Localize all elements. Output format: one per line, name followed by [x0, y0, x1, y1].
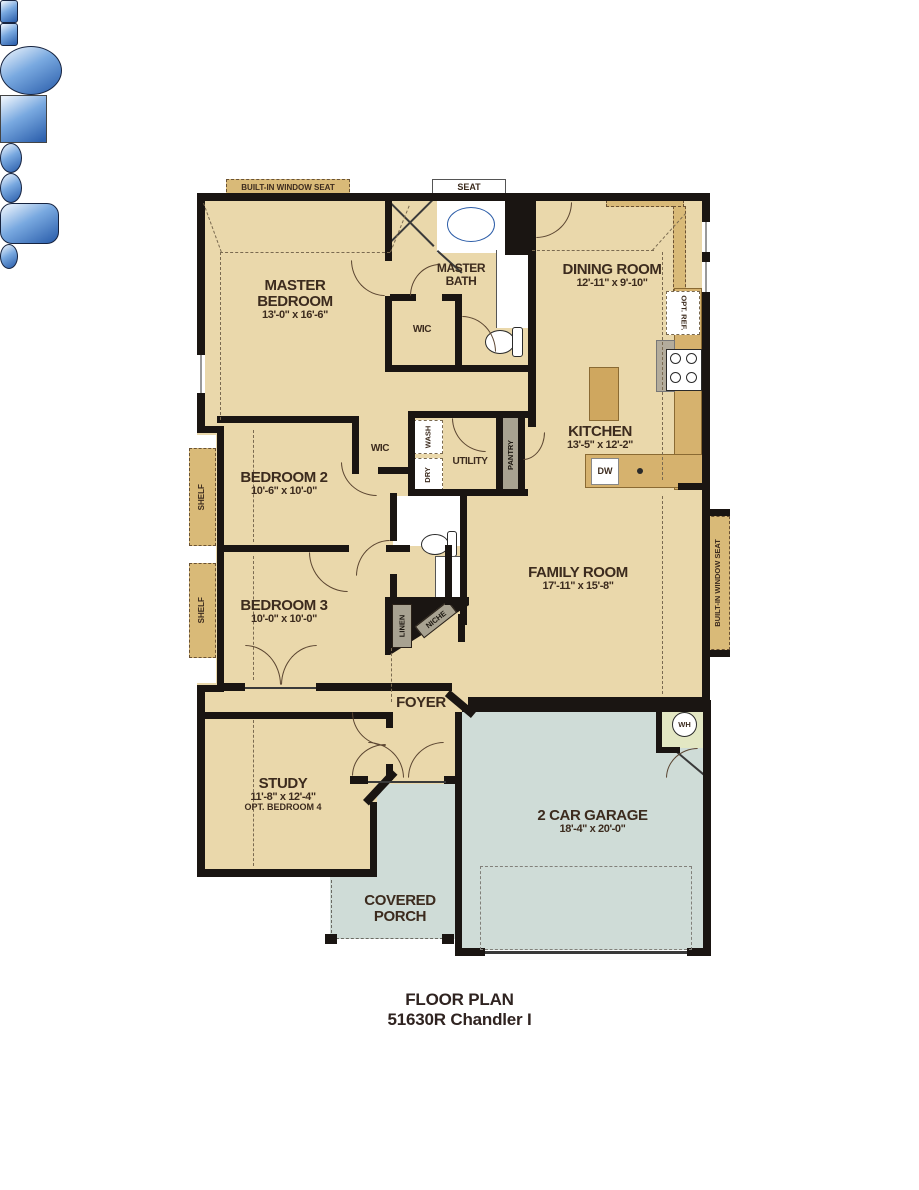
built-in-window-seat-top-label: BUILT-IN WINDOW SEAT — [241, 184, 334, 192]
room-dims: 18'-4" x 20'-0" — [520, 824, 665, 836]
linen-closet: LINEN — [392, 604, 412, 648]
dry-label: DRY — [424, 467, 432, 483]
shelf-label: SHELF — [198, 484, 206, 510]
tray-ceiling-dash — [220, 252, 390, 253]
washer: WASH — [413, 420, 443, 454]
bedroom2-label: BEDROOM 2 10'-6" x 10'-0" — [226, 470, 342, 497]
closet-opening-line — [245, 687, 316, 689]
wall — [703, 700, 711, 956]
wall — [370, 802, 377, 874]
pantry-shelving: PANTRY — [503, 413, 518, 496]
master-bath-label: MASTER BATH — [420, 262, 502, 287]
bathtub-inner-ring — [447, 207, 495, 242]
room-name: BEDROOM 3 — [226, 598, 342, 614]
faucet-icon — [637, 468, 643, 474]
family-room-label: FAMILY ROOM 17'-11" x 15'-8" — [518, 565, 638, 592]
wall — [460, 493, 467, 625]
burner-icon — [686, 372, 697, 383]
wall — [455, 712, 462, 956]
built-in-window-seat-right-label: BUILT-IN WINDOW SEAT — [714, 539, 722, 627]
wall — [217, 416, 357, 423]
dryer: DRY — [413, 458, 443, 491]
room-name: UTILITY — [440, 457, 500, 468]
kitchen-sink-icon — [0, 0, 18, 23]
master-bedroom-label: MASTER BEDROOM 13'-0" x 16'-6" — [230, 278, 360, 321]
room-name: BEDROOM 2 — [226, 470, 342, 486]
room-name: COVERED PORCH — [352, 893, 448, 925]
pantry-label: PANTRY — [507, 440, 515, 470]
wall — [385, 296, 392, 372]
wash-label: WASH — [424, 426, 432, 449]
bathtub2-icon — [0, 203, 59, 244]
window-glass-line — [705, 262, 707, 292]
dw-label: DW — [598, 467, 613, 476]
room-name: STUDY — [223, 776, 343, 792]
covered-porch-label: COVERED PORCH — [352, 893, 448, 925]
dishwasher: DW — [591, 458, 619, 485]
wall — [197, 193, 512, 201]
burner-icon — [670, 372, 681, 383]
cased-opening-dash — [391, 648, 392, 702]
burner-icon — [670, 353, 681, 364]
toilet-tank-icon — [512, 327, 523, 357]
entry-threshold-line — [368, 781, 446, 783]
room-name: WIC — [400, 325, 444, 336]
room-dims: 10'-6" x 10'-0" — [226, 486, 342, 498]
room-name: FAMILY ROOM — [518, 565, 638, 581]
wall — [468, 697, 710, 705]
bedroom3-shelf: SHELF — [189, 563, 216, 658]
bedroom3-label: BEDROOM 3 10'-0" x 10'-0" — [226, 598, 342, 625]
dining-room-label: DINING ROOM 12'-11" x 9'-10" — [560, 262, 664, 289]
dining-ceiling-dash — [532, 250, 654, 251]
porch-edge-dash — [331, 938, 443, 939]
room-name: KITCHEN — [540, 424, 660, 440]
wall — [462, 705, 710, 712]
window-glass-line — [200, 355, 202, 393]
shower-icon — [0, 95, 47, 143]
wall — [390, 574, 397, 602]
room-dims: 13'-0" x 16'-6" — [230, 310, 360, 322]
plan-subtitle: 51630R Chandler I — [0, 1010, 919, 1030]
wall — [217, 545, 349, 552]
wall — [408, 489, 528, 496]
seat-label: SEAT — [457, 183, 480, 192]
optional-refrigerator: OPT. REF. — [666, 291, 700, 335]
floor-plan: BUILT-IN WINDOW SEAT SEAT SHELF SHELF BU… — [0, 0, 919, 1190]
porch-post — [325, 934, 337, 944]
wall — [408, 411, 415, 494]
wall — [316, 683, 452, 691]
sink-icon — [0, 143, 22, 173]
wall — [197, 193, 205, 433]
plan-title: FLOOR PLAN — [0, 990, 919, 1010]
room-dims: 13'-5" x 12'-2" — [540, 440, 660, 452]
foyer-label: FOYER — [388, 695, 454, 711]
utility-label: UTILITY — [440, 457, 500, 468]
shelf-label: SHELF — [198, 597, 206, 623]
room-dims: 17'-11" x 15'-8" — [518, 581, 638, 593]
wall — [656, 747, 680, 753]
wall — [197, 869, 377, 877]
linen-label: LINEN — [398, 615, 406, 638]
master-wic-label: WIC — [400, 325, 444, 336]
wall — [217, 683, 245, 691]
sink-icon — [0, 244, 18, 269]
soffit-dash — [662, 496, 663, 694]
wall — [408, 411, 530, 418]
room-name: MASTER BATH — [420, 262, 502, 287]
wall — [678, 483, 704, 490]
room-name: 2 CAR GARAGE — [520, 808, 665, 824]
wh-label: WH — [678, 721, 691, 729]
study-label: STUDY 11'-8" x 12'-4" OPT. BEDROOM 4 — [223, 776, 343, 813]
wic2-label: WIC — [358, 444, 402, 455]
room-dims: 12'-11" x 9'-10" — [560, 278, 664, 290]
wall-chase — [505, 193, 536, 255]
porch-upper-area — [377, 784, 455, 876]
wall — [390, 493, 397, 541]
kitchen-island — [589, 367, 619, 421]
opt-ref-label: OPT. REF. — [679, 295, 687, 330]
kitchen-label: KITCHEN 13'-5" x 12'-2" — [540, 424, 660, 451]
tray-ceiling-dash — [220, 252, 221, 420]
room-name: WIC — [358, 444, 402, 455]
wall — [656, 705, 662, 753]
room-name: MASTER BEDROOM — [230, 278, 360, 310]
room-name: DINING ROOM — [560, 262, 664, 278]
wall — [528, 255, 536, 427]
bathtub-icon — [0, 46, 62, 95]
room-dims: 10'-0" x 10'-0" — [226, 614, 342, 626]
porch-post — [442, 934, 454, 944]
porch-edge-dash — [331, 880, 332, 938]
wall — [385, 365, 536, 372]
water-heater-icon: WH — [672, 712, 697, 737]
garage-door-dash-area — [480, 866, 692, 950]
wall — [217, 426, 224, 692]
garage-label: 2 CAR GARAGE 18'-4" x 20'-0" — [520, 808, 665, 835]
room-name: FOYER — [388, 695, 454, 711]
wall — [445, 545, 452, 605]
window-glass-line — [705, 222, 707, 252]
wall — [378, 467, 412, 474]
wall — [496, 411, 503, 496]
wall — [530, 193, 710, 201]
kitchen-sink-icon — [0, 23, 18, 46]
bedroom2-shelf: SHELF — [189, 448, 216, 546]
sink-icon — [0, 173, 22, 203]
burner-icon — [686, 353, 697, 364]
room-note: OPT. BEDROOM 4 — [223, 803, 343, 812]
garage-door-line — [485, 951, 687, 954]
wall — [350, 776, 368, 784]
wall — [455, 294, 462, 372]
